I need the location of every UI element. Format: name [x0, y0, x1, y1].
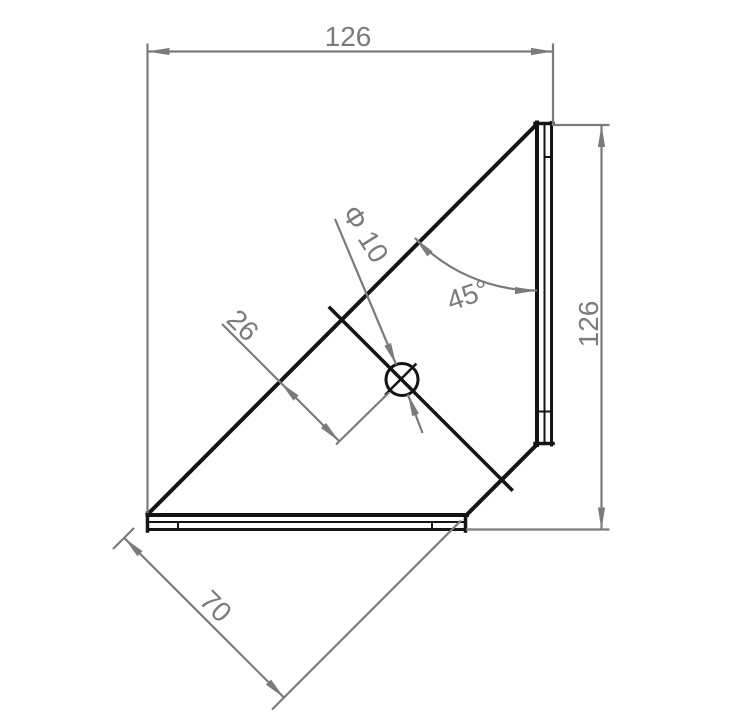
rib-centerline	[330, 308, 512, 490]
dimension-hole-edge-distance: 26	[221, 303, 389, 444]
dimension-label-top-width: 126	[325, 21, 372, 52]
dimension-line-hole-edge	[281, 383, 340, 442]
dimension-hole-diameter: Φ 10	[335, 200, 423, 433]
dimension-label-base-depth: 70	[194, 584, 238, 628]
dimension-line-base-depth	[124, 538, 284, 698]
extension-line-hole-center	[336, 393, 389, 445]
dimension-chamfer-angle: 45°	[415, 238, 537, 317]
bracket-part	[148, 123, 554, 532]
dimension-label-angle: 45°	[443, 273, 493, 316]
technical-drawing-canvas: 126 126 45° Φ 10 26	[0, 0, 747, 722]
dimension-top-width: 126	[148, 21, 554, 513]
dimension-label-hole-edge: 26	[221, 303, 265, 347]
dimension-base-depth: 70	[113, 521, 461, 710]
dimension-label-hole-diameter: Φ 10	[336, 200, 395, 268]
dimension-label-right-height: 126	[573, 301, 604, 348]
extension-line-far	[272, 521, 461, 710]
